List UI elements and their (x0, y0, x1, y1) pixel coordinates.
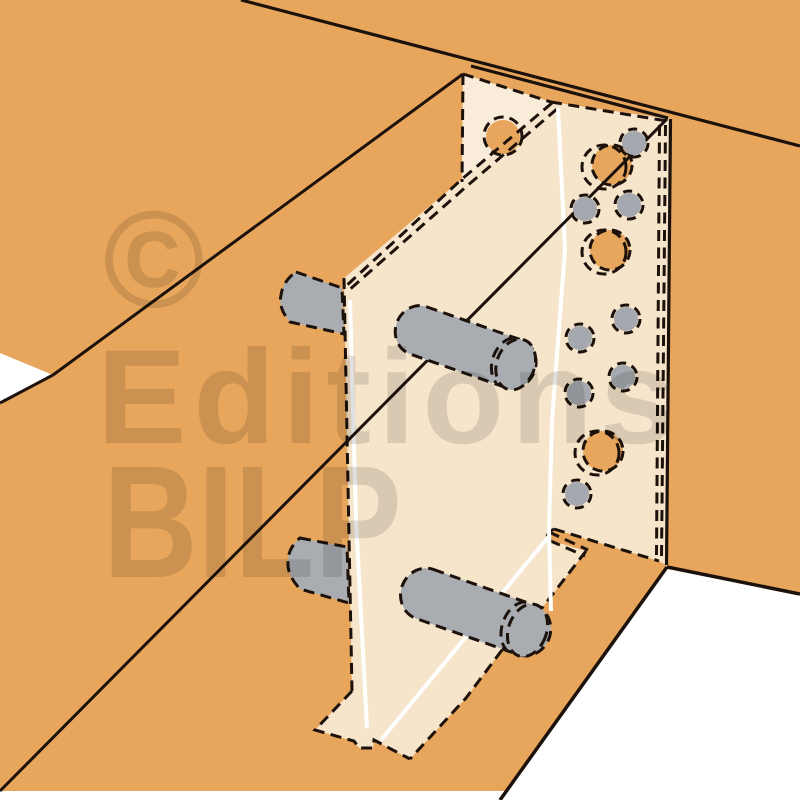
svg-text:BILP: BILP (103, 434, 402, 612)
svg-text:©: © (103, 183, 205, 337)
